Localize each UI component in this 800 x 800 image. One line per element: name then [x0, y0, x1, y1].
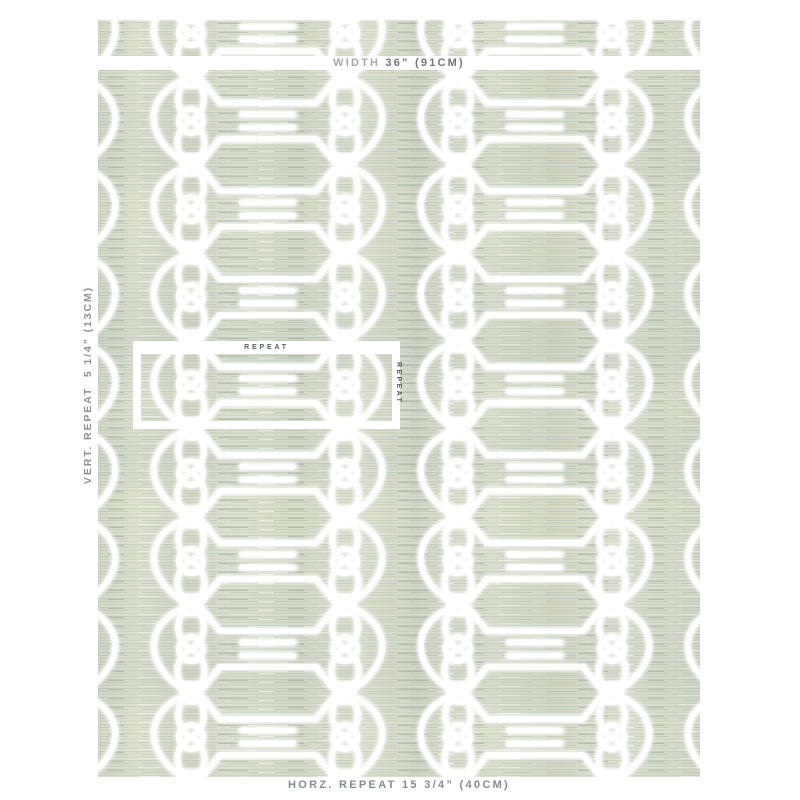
- repeat-frame-side-label: REPEAT: [395, 362, 402, 404]
- width-band: WIDTH 36” (91CM): [98, 56, 700, 70]
- repeat-frame: REPEAT REPEAT: [133, 341, 400, 429]
- vertical-repeat-label: VERT. REPEAT 5 1/4” (13CM): [82, 286, 94, 484]
- repeat-frame-bottom-bar: [133, 421, 400, 429]
- repeat-frame-top-label: REPEAT: [133, 344, 400, 351]
- width-label: WIDTH: [333, 57, 385, 69]
- horizontal-repeat-label: HORZ. REPEAT 15 3/4” (40CM): [98, 779, 700, 791]
- width-value: 36” (91CM): [385, 57, 464, 69]
- repeat-frame-left-bar: [133, 341, 141, 429]
